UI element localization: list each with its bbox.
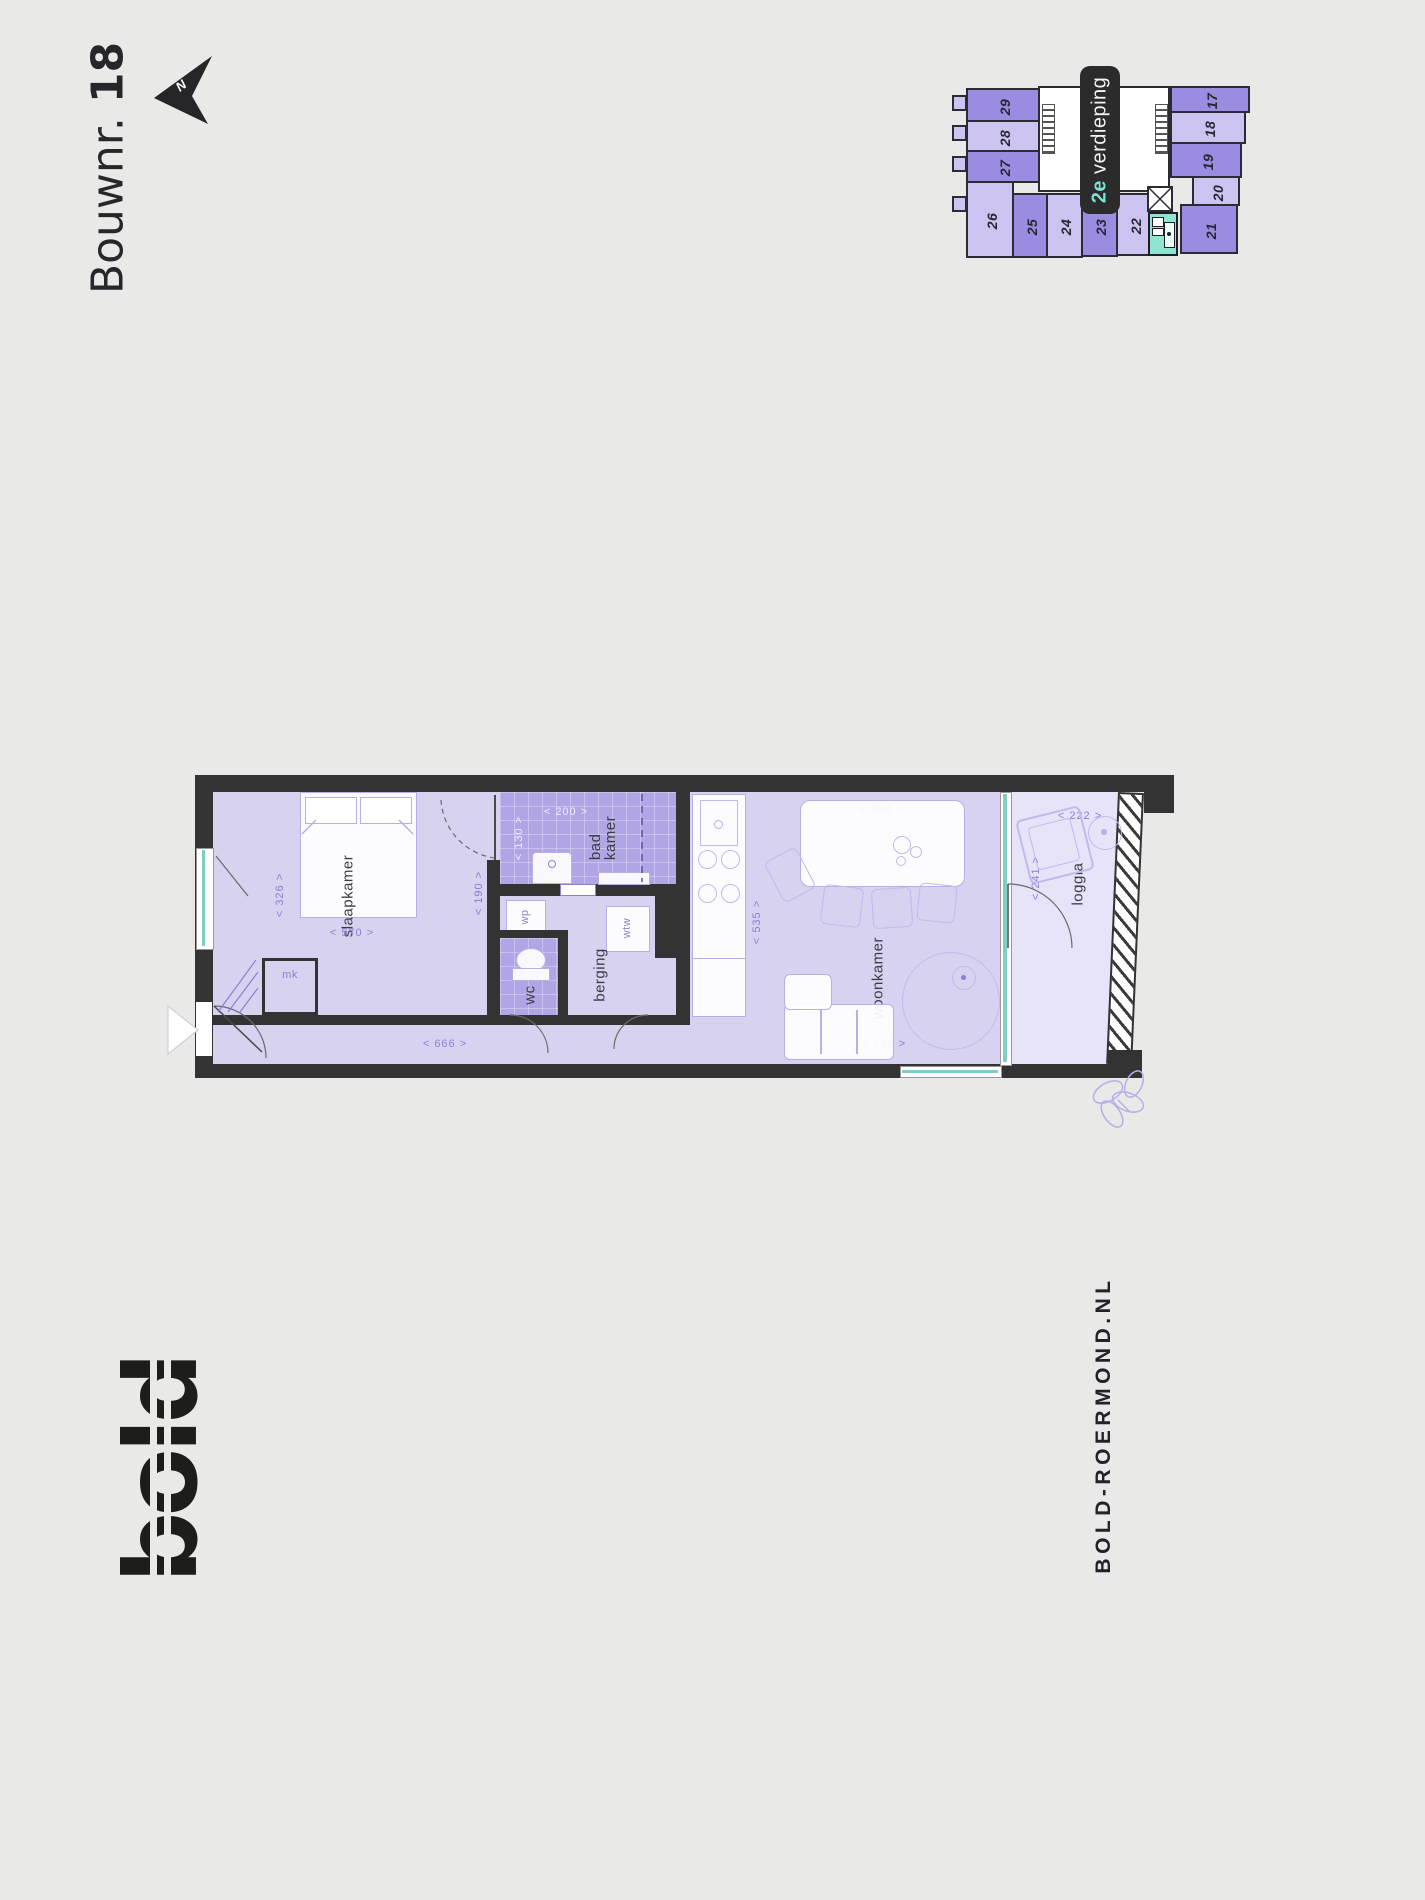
wall-wc-right	[558, 930, 568, 1015]
map-unit-28: 28	[966, 120, 1040, 152]
bouwnr-number: 18	[83, 42, 134, 103]
window-glass-line	[202, 850, 205, 946]
map-unit-29-label: 29	[997, 99, 1013, 116]
sofa-seam	[820, 1010, 822, 1054]
dining-chair	[916, 882, 958, 924]
wall-corner-topright	[1144, 775, 1174, 813]
logo-slit	[150, 1347, 157, 1593]
loggia-glass-line	[1003, 794, 1007, 1062]
map-unit-22: 22	[1116, 193, 1152, 256]
bed-pillow	[305, 797, 357, 824]
map-unit-19: 19	[1170, 142, 1242, 178]
highlighted-unit-marker	[1148, 212, 1178, 256]
map-unit-18-label: 18	[1202, 121, 1218, 138]
room-label-badkamer: bad kamer	[588, 816, 618, 860]
map-unit-20: 20	[1192, 176, 1240, 206]
washbasin-tap	[548, 860, 556, 868]
map-unit-24: 24	[1046, 193, 1083, 258]
bed-pillow	[360, 797, 412, 824]
shaft	[655, 896, 676, 958]
room-label-berging: berging	[592, 948, 609, 1002]
table-decor	[910, 846, 922, 858]
map-unit-27-label: 27	[997, 160, 1013, 177]
map-unit-26: 26	[966, 181, 1014, 258]
floor-badge: 2e verdieping	[1080, 66, 1120, 214]
hob-burner	[721, 850, 740, 869]
wtw-label: wtw	[621, 918, 633, 938]
map-unit-22-label: 22	[1128, 218, 1144, 235]
marker-fixture	[1152, 228, 1164, 236]
wall-hal-top	[487, 1015, 690, 1025]
map-unit-19-label: 19	[1200, 154, 1216, 171]
room-label-slaapkamer: slaapkamer	[340, 855, 357, 938]
page-title: Bouwnr. 18	[83, 42, 134, 294]
wall-slaapkamer-middle	[487, 860, 500, 1025]
map-unit-18: 18	[1170, 111, 1246, 144]
dining-table	[800, 800, 965, 887]
window-slaapkamer	[196, 848, 214, 950]
north-arrow-icon: N	[150, 52, 230, 137]
dim-666: < 666 >	[423, 1038, 467, 1050]
wall-corner-bottomright	[1108, 1050, 1142, 1078]
map-unit-23-label: 23	[1093, 219, 1109, 236]
site-url: BOLD-ROERMOND.NL	[1092, 1276, 1116, 1573]
room-label-wc: wc	[522, 985, 539, 1004]
dim-326: < 326 >	[274, 873, 286, 917]
dining-chair	[871, 887, 914, 930]
kitchen-tall-cabinet	[692, 958, 746, 1017]
window-glass-line-2	[902, 1070, 998, 1073]
map-unit-28-label: 28	[997, 130, 1013, 147]
bold-logo-text: bold	[103, 1357, 220, 1583]
map-unit-24-label: 24	[1058, 219, 1074, 236]
map-unit-29: 29	[966, 88, 1040, 122]
dim-200: < 200 >	[544, 806, 588, 818]
map-unit-25: 25	[1012, 193, 1048, 258]
balcony-tab	[952, 196, 967, 212]
hob-burner	[698, 884, 717, 903]
site-url-text: BOLD-ROERMOND.NL	[1092, 1276, 1115, 1573]
floor-badge-number: 2e	[1089, 180, 1111, 203]
hob-burner	[698, 850, 717, 869]
courtyard-balcony-right	[1155, 104, 1168, 154]
meterkast	[262, 958, 318, 1015]
floor-lamp-dot	[961, 975, 966, 980]
wall-top	[195, 775, 1172, 792]
toilet-tank	[512, 968, 550, 981]
hob-burner	[721, 884, 740, 903]
room-label-mk: mk	[282, 969, 298, 981]
wp-label: wp	[519, 909, 531, 924]
dim-190: < 190 >	[473, 871, 485, 915]
map-unit-21: 21	[1180, 204, 1238, 254]
bold-logo: bold	[112, 1357, 212, 1583]
map-unit-25-label: 25	[1024, 219, 1040, 236]
map-unit-26-label: 26	[984, 213, 1000, 230]
floor-badge-label: verdieping	[1089, 77, 1111, 174]
bathroom-radiator	[598, 872, 650, 885]
map-unit-20-label: 20	[1210, 185, 1226, 202]
bouwnr-prefix: Bouwnr.	[83, 117, 134, 294]
marker-fixture	[1152, 217, 1164, 227]
wall-middle-kitchen	[676, 792, 690, 1015]
table-decor	[893, 836, 911, 854]
washbasin	[532, 852, 572, 884]
rug	[902, 952, 1000, 1050]
vent-unit	[560, 884, 596, 896]
dim-130: < 130 >	[513, 816, 525, 860]
dim-570: < 570 >	[330, 927, 374, 939]
entrance-opening	[196, 1002, 212, 1056]
table-decor	[896, 856, 906, 866]
north-letter: N	[173, 76, 190, 94]
logo-slit	[164, 1347, 171, 1593]
kitchen-tap	[714, 820, 723, 829]
balcony-tab	[952, 156, 967, 172]
map-unit-17: 17	[1170, 86, 1250, 113]
dining-chair	[820, 884, 865, 929]
sofa-chaise	[784, 974, 832, 1010]
map-unit-21-label: 21	[1203, 223, 1219, 240]
map-unit-27: 27	[966, 150, 1040, 183]
balcony-tab	[952, 95, 967, 111]
courtyard-balcony-left	[1042, 104, 1055, 154]
badkamer-line2: kamer	[602, 816, 619, 860]
map-unit-17-label: 17	[1204, 93, 1220, 110]
side-table-dot	[1101, 829, 1107, 835]
sofa	[784, 1004, 894, 1060]
sofa-seam	[856, 1010, 858, 1054]
brochure-page: Bouwnr. 18 N 29 28 27 26 25 24	[0, 0, 1425, 1900]
balcony-tab	[952, 125, 967, 141]
wall-slaapkamer-hal	[212, 1015, 487, 1025]
marker-dot	[1167, 232, 1171, 236]
dim-535: < 535 >	[751, 900, 763, 944]
